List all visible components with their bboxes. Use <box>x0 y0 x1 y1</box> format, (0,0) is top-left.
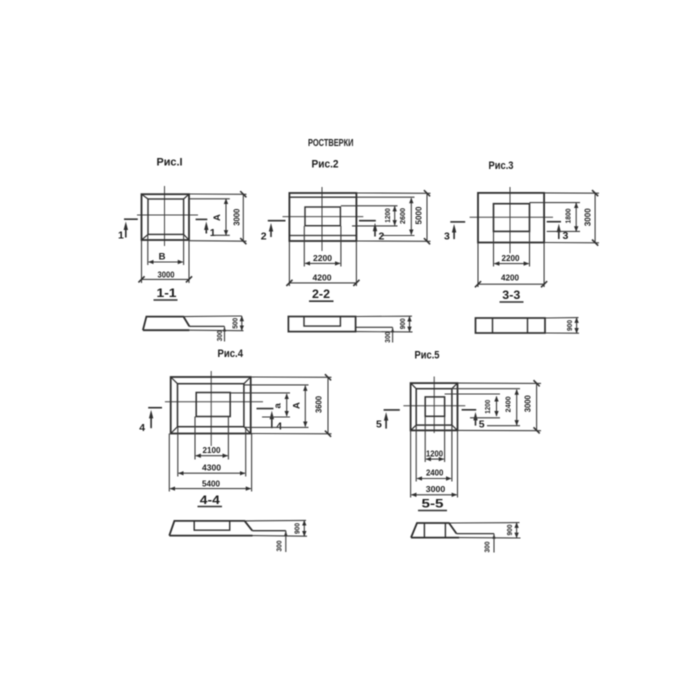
svg-text:РОСТВЕРКИ: РОСТВЕРКИ <box>308 138 354 149</box>
svg-text:1200: 1200 <box>483 400 492 414</box>
svg-text:3-3: 3-3 <box>502 290 520 302</box>
svg-text:Рис.2: Рис.2 <box>312 159 339 171</box>
svg-text:2400: 2400 <box>426 468 444 478</box>
svg-text:4-4: 4-4 <box>200 495 221 507</box>
svg-text:5: 5 <box>479 419 485 431</box>
svg-text:2200: 2200 <box>502 253 520 263</box>
svg-text:Рис.I: Рис.I <box>157 157 183 169</box>
svg-text:4: 4 <box>139 422 145 434</box>
svg-text:2400: 2400 <box>503 396 512 412</box>
svg-text:5000: 5000 <box>414 206 423 225</box>
svg-text:2: 2 <box>261 231 267 243</box>
svg-text:3000: 3000 <box>426 484 446 494</box>
svg-text:1800: 1800 <box>563 209 572 224</box>
svg-text:300: 300 <box>483 542 492 553</box>
svg-text:A: A <box>291 402 302 409</box>
svg-text:4: 4 <box>276 420 282 432</box>
svg-text:300: 300 <box>215 330 224 341</box>
svg-text:300: 300 <box>383 332 392 343</box>
svg-text:1200: 1200 <box>383 208 392 223</box>
svg-text:1: 1 <box>118 230 124 242</box>
svg-text:A: A <box>212 214 223 221</box>
svg-text:3000: 3000 <box>584 208 593 227</box>
svg-text:300: 300 <box>275 541 284 552</box>
svg-text:2600: 2600 <box>398 208 407 224</box>
svg-text:3000: 3000 <box>232 208 241 226</box>
svg-text:Рис.3: Рис.3 <box>489 160 514 172</box>
svg-text:4300: 4300 <box>202 463 221 473</box>
svg-text:B: B <box>159 252 166 263</box>
svg-text:a: a <box>272 403 283 409</box>
svg-text:3: 3 <box>444 230 450 242</box>
svg-text:Рис.4: Рис.4 <box>218 348 244 360</box>
svg-text:900: 900 <box>565 320 574 331</box>
svg-text:5-5: 5-5 <box>422 497 444 511</box>
svg-text:5400: 5400 <box>202 478 220 488</box>
svg-text:4200: 4200 <box>313 273 332 283</box>
svg-text:1: 1 <box>210 227 216 239</box>
svg-text:900: 900 <box>398 318 407 329</box>
svg-text:900: 900 <box>505 525 514 536</box>
svg-text:1200: 1200 <box>426 449 443 459</box>
svg-text:2100: 2100 <box>203 445 221 455</box>
svg-text:2-2: 2-2 <box>312 289 330 301</box>
svg-text:Рис.5: Рис.5 <box>415 350 440 362</box>
svg-text:3000: 3000 <box>158 270 175 280</box>
svg-text:4200: 4200 <box>501 273 519 283</box>
svg-text:2200: 2200 <box>313 253 332 263</box>
svg-text:3600: 3600 <box>315 395 324 413</box>
svg-text:900: 900 <box>293 523 302 534</box>
svg-text:500: 500 <box>230 318 239 329</box>
svg-text:5: 5 <box>376 418 382 430</box>
svg-text:3000: 3000 <box>523 395 532 413</box>
svg-text:1-1: 1-1 <box>157 288 178 300</box>
